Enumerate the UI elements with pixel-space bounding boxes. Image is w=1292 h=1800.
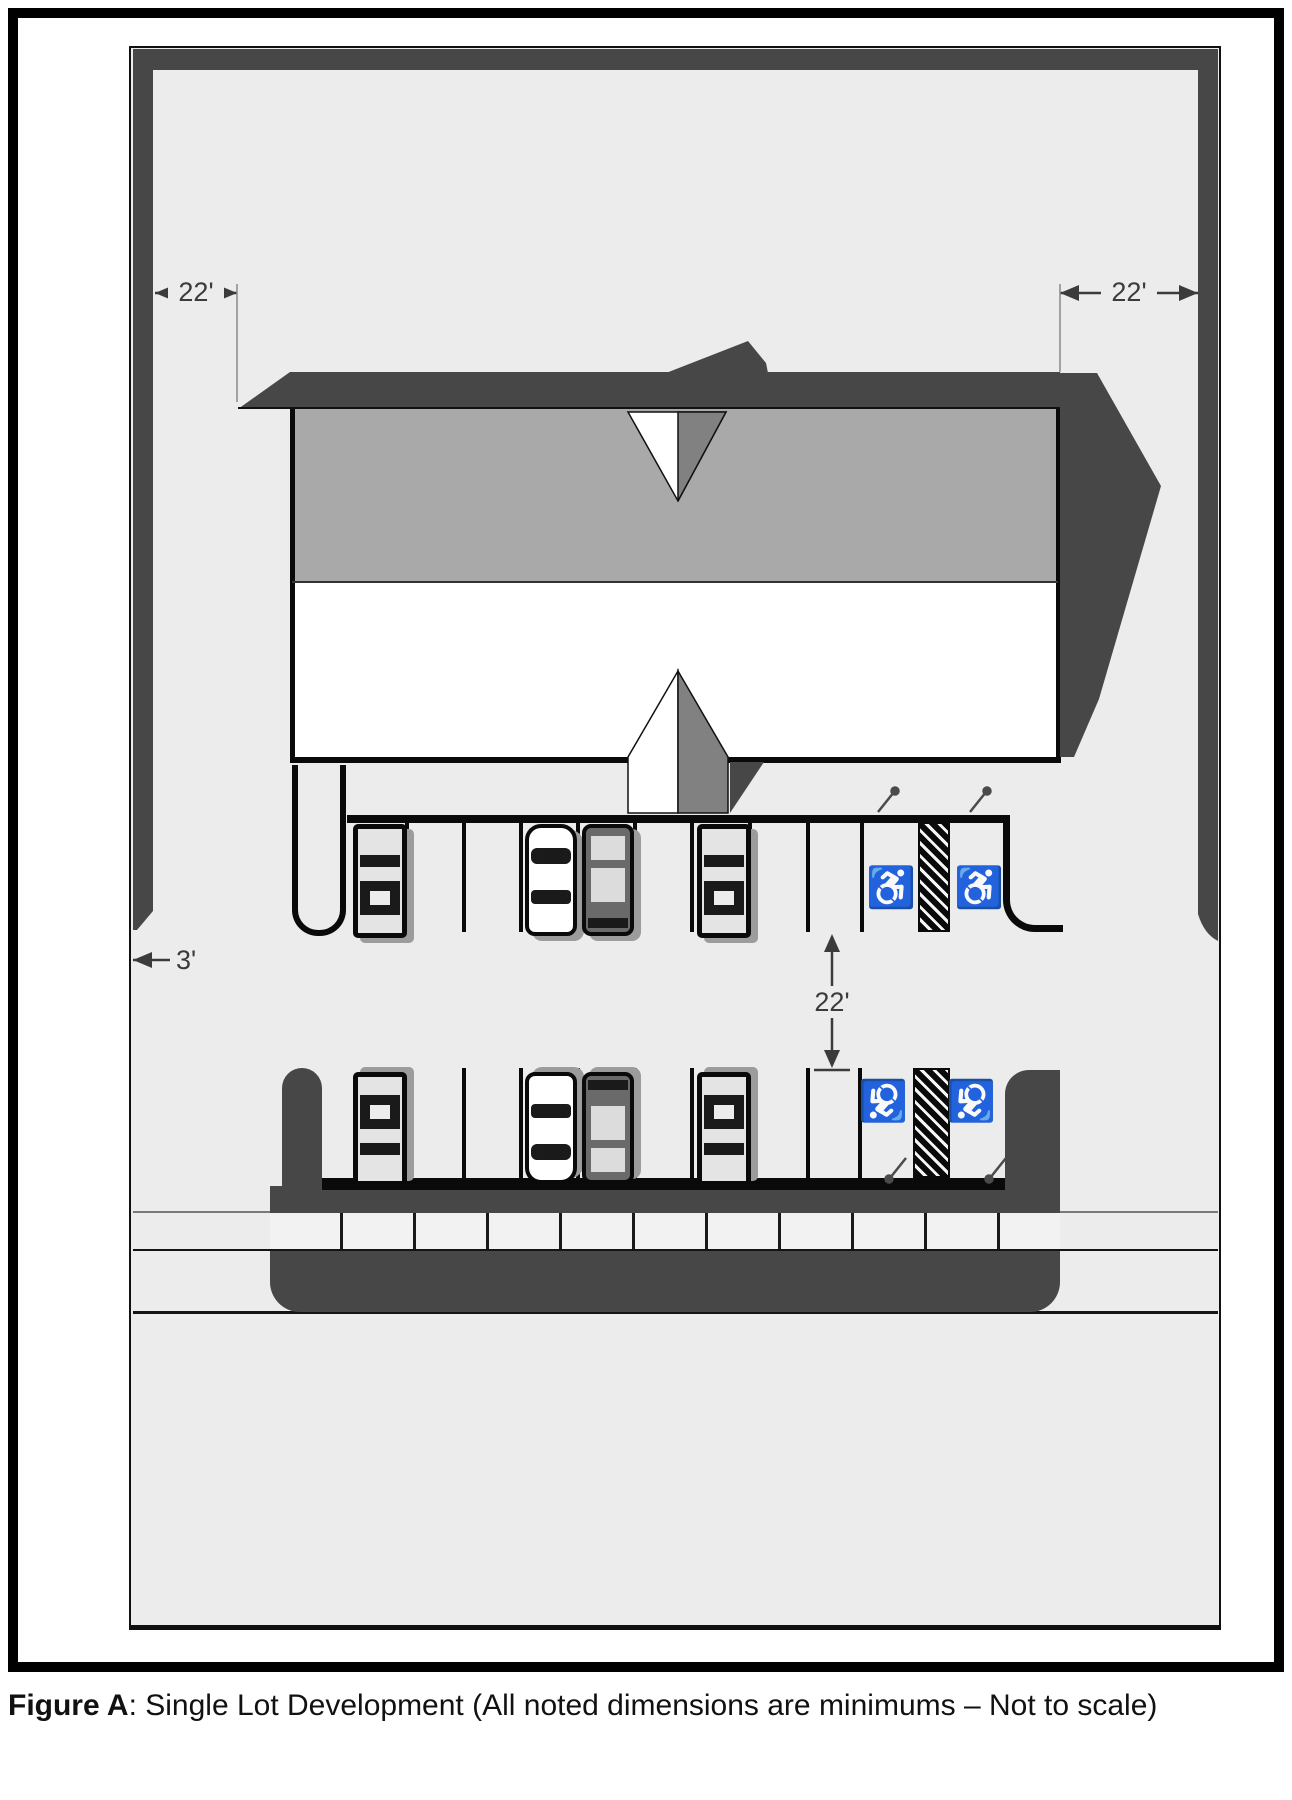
- stall-divider: [519, 1068, 523, 1178]
- wheelchair-icon: ♿: [954, 868, 1000, 908]
- parked-car: [525, 1072, 577, 1184]
- parked-car: [353, 1072, 407, 1186]
- upper-row-right-curb: [1003, 815, 1063, 932]
- figure-caption: Figure A: Single Lot Development (All no…: [8, 1686, 1286, 1727]
- dimension-label-setback-left: 22': [168, 276, 224, 308]
- building-left-wall: [290, 409, 295, 762]
- wheelchair-icon: ♿: [950, 1080, 996, 1120]
- dimension-label-setback-right: 22': [1101, 276, 1157, 308]
- stall-divider: [690, 822, 694, 932]
- upper-row-head-bar: [347, 815, 1008, 823]
- stall-divider: [806, 1068, 810, 1178]
- sidewalk: [270, 1213, 1060, 1249]
- hatched-access-aisle: [918, 822, 950, 932]
- lot-top-border: [133, 49, 1218, 70]
- parked-car: [353, 824, 407, 938]
- stall-divider: [806, 822, 810, 932]
- wheelchair-icon: ♿: [866, 868, 912, 908]
- building-right-wall: [1056, 409, 1061, 762]
- lower-row-head-bar: [322, 1178, 1005, 1190]
- wheelchair-icon: ♿: [862, 1080, 908, 1120]
- figure-caption-label: Figure A: [8, 1689, 129, 1722]
- upper-row-left-curb: [292, 765, 346, 936]
- building-front-face: [292, 583, 1058, 759]
- building-front-wall: [290, 757, 1061, 763]
- curb-island-left: [282, 1068, 322, 1213]
- parked-car: [697, 824, 751, 938]
- curb-island-right: [1005, 1070, 1060, 1213]
- lot-left-border: [133, 49, 153, 905]
- building-roof-face: [292, 409, 1058, 583]
- parked-car: [582, 1072, 634, 1184]
- hatched-access-aisle: [913, 1068, 950, 1178]
- stall-divider: [860, 822, 864, 932]
- lot-right-border: [1198, 49, 1218, 905]
- parked-car: [697, 1072, 751, 1186]
- frontage-band-lower: [270, 1251, 1060, 1312]
- roof-eave-line: [292, 581, 1058, 583]
- frontage-band-upper: [270, 1186, 1060, 1213]
- dimension-label-side-strip: 3': [176, 944, 220, 976]
- figure-caption-text: : Single Lot Development (All noted dime…: [129, 1689, 1158, 1722]
- stall-divider: [519, 822, 523, 932]
- stall-divider: [690, 1068, 694, 1178]
- stall-divider: [462, 1068, 466, 1178]
- parked-car: [525, 824, 577, 936]
- parked-car: [582, 824, 634, 936]
- dimension-label-aisle-width: 22': [804, 986, 860, 1018]
- figure-a-page: ♿ ♿ ♿ ♿: [0, 0, 1292, 1800]
- stall-divider: [462, 822, 466, 932]
